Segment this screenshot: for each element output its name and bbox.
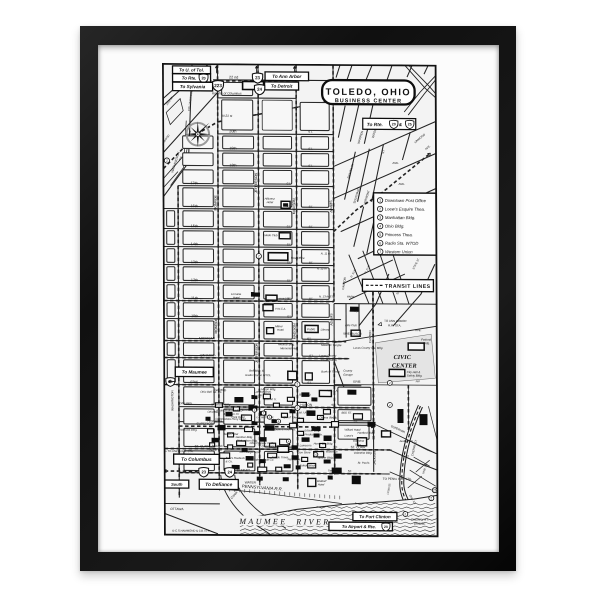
svg-text:ST.: ST. xyxy=(353,419,358,423)
svg-text:2: 2 xyxy=(379,207,381,211)
svg-text:Hotel: Hotel xyxy=(233,295,240,299)
svg-text:18th: 18th xyxy=(229,163,236,167)
svg-text:MONROE: MONROE xyxy=(214,317,218,333)
svg-text:Natl. Bank: Natl. Bank xyxy=(288,457,302,461)
svg-text:11th: 11th xyxy=(191,296,198,300)
svg-text:Western Union: Western Union xyxy=(385,249,413,254)
svg-text:‹ONTARIO›: ‹ONTARIO› xyxy=(199,353,215,357)
svg-text:TRANSIT LINES: TRANSIT LINES xyxy=(385,283,431,289)
svg-text:19th: 19th xyxy=(229,146,236,150)
svg-text:Nicholas Bldg.: Nicholas Bldg. xyxy=(180,427,198,431)
svg-text:23: 23 xyxy=(255,75,260,80)
svg-text:N 21 st: N 21 st xyxy=(222,113,232,117)
svg-text:LYNN: LYNN xyxy=(354,474,362,478)
svg-text:Huron Bldg.: Huron Bldg. xyxy=(261,387,276,391)
svg-text:To Airport & Rte.: To Airport & Rte. xyxy=(342,524,380,529)
svg-text:10th: 10th xyxy=(191,314,198,318)
svg-text:ST.: ST. xyxy=(287,224,292,228)
svg-text:2: 2 xyxy=(166,158,168,162)
svg-text:20: 20 xyxy=(392,122,396,126)
svg-text:Y.W.C.A.: Y.W.C.A. xyxy=(275,306,286,310)
svg-text:Auditorium: Auditorium xyxy=(399,438,414,442)
svg-text:22 nd: 22 nd xyxy=(229,75,238,79)
svg-text:JEFFERSON: JEFFERSON xyxy=(255,342,259,363)
svg-text:BRIDGE: BRIDGE xyxy=(414,521,426,525)
svg-text:Radio Sta. WTOD: Radio Sta. WTOD xyxy=(385,240,418,245)
svg-text:Toledo Blade: Toledo Blade xyxy=(300,463,317,467)
svg-text:Radio Station WTOL: Radio Station WTOL xyxy=(245,373,271,377)
svg-text:ST.: ST. xyxy=(308,163,313,167)
svg-text:5: 5 xyxy=(379,232,381,236)
svg-text:Princess Thea.: Princess Thea. xyxy=(385,232,413,237)
svg-text:N. 11 th: N. 11 th xyxy=(321,251,331,255)
svg-text:Nat. Union: Nat. Union xyxy=(297,410,311,414)
svg-text:Bell Bldg. &: Bell Bldg. & xyxy=(249,368,264,372)
svg-text:20th: 20th xyxy=(229,129,236,133)
svg-text:Elec. Bldg.: Elec. Bldg. xyxy=(213,387,227,391)
svg-text:CIVIC: CIVIC xyxy=(394,353,412,360)
svg-text:ST.: ST. xyxy=(309,353,314,357)
svg-text:Ohio Bldg.: Ohio Bldg. xyxy=(179,401,192,405)
svg-text:N. 12 th: N. 12 th xyxy=(317,266,327,270)
svg-text:Lamson’s: Lamson’s xyxy=(300,443,313,447)
svg-text:Bldg.: Bldg. xyxy=(423,341,430,345)
svg-text:TO PENN. R.R. STA.: TO PENN. R.R. STA. xyxy=(383,476,412,480)
svg-text:SUMMIT: SUMMIT xyxy=(237,468,250,472)
svg-text:To Sylvania: To Sylvania xyxy=(180,84,206,89)
svg-text:Tiedtke's: Tiedtke's xyxy=(328,468,340,472)
svg-text:2: 2 xyxy=(405,512,407,516)
svg-text:Lion Store: Lion Store xyxy=(298,450,311,454)
svg-text:ST.: ST. xyxy=(287,314,292,318)
svg-text:To Rte.: To Rte. xyxy=(367,122,383,128)
svg-text:ST.: ST. xyxy=(287,278,292,282)
svg-text:ERIE: ERIE xyxy=(190,380,199,384)
svg-text:ST.: ST. xyxy=(286,181,291,185)
svg-text:Post Office: Post Office xyxy=(291,255,305,259)
svg-text:ST.: ST. xyxy=(334,445,339,449)
svg-text:ST.: ST. xyxy=(287,204,292,208)
svg-text:15th: 15th xyxy=(191,224,198,228)
svg-text:2: 2 xyxy=(389,381,391,385)
svg-text:N. 13 th ST.: N. 13 th ST. xyxy=(319,294,334,298)
svg-text:Braun Co.: Braun Co. xyxy=(210,447,223,451)
svg-text:To Detroit: To Detroit xyxy=(271,83,293,88)
svg-text:Thea.: Thea. xyxy=(355,442,362,446)
svg-text:To Rte.: To Rte. xyxy=(182,75,202,80)
svg-text:Jail: Jail xyxy=(415,379,420,383)
svg-text:LaSalle & Koch Co.: LaSalle & Koch Co. xyxy=(272,427,296,431)
svg-text:Valentine: Valentine xyxy=(353,438,365,442)
svg-text:ST. CLAIR: ST. CLAIR xyxy=(195,444,211,448)
svg-text:25: 25 xyxy=(408,122,412,126)
svg-text:Waldman: Waldman xyxy=(326,449,338,453)
svg-text:Gardner Bldg.: Gardner Bldg. xyxy=(236,434,254,438)
svg-text:Court: Court xyxy=(402,453,409,457)
svg-text:Memorial Hall: Memorial Hall xyxy=(280,346,297,350)
svg-text:ST.: ST. xyxy=(309,260,314,264)
svg-text:Owens Illinois: Owens Illinois xyxy=(319,415,337,419)
svg-text:PARK: PARK xyxy=(347,294,355,298)
svg-text:4: 4 xyxy=(379,224,381,228)
svg-text:12th: 12th xyxy=(191,278,198,282)
svg-text:ST.: ST. xyxy=(309,224,314,228)
svg-text:ST.: ST. xyxy=(307,336,312,340)
svg-text:24: 24 xyxy=(227,469,232,474)
svg-text:Downtown Post Office: Downtown Post Office xyxy=(385,197,427,202)
svg-text:2: 2 xyxy=(258,254,260,258)
svg-text:ST.: ST. xyxy=(307,380,312,384)
svg-text:Bk. of Toledo: Bk. of Toledo xyxy=(283,415,300,419)
svg-text:17th: 17th xyxy=(190,181,197,185)
svg-text:ADAMS: ADAMS xyxy=(329,199,333,212)
svg-text:223: 223 xyxy=(214,83,222,88)
svg-text:Summit Tr.: Summit Tr. xyxy=(263,397,277,401)
svg-text:WASHINGTON: WASHINGTON xyxy=(170,390,174,411)
svg-text:Home Bk. Bldg.: Home Bk. Bldg. xyxy=(314,441,334,445)
svg-text:Court House: Court House xyxy=(321,357,337,361)
svg-text:To U. of Tol.: To U. of Tol. xyxy=(179,67,204,72)
svg-text:MADISON: MADISON xyxy=(293,322,297,338)
svg-text:Toledo Club: Toledo Club xyxy=(263,233,278,237)
svg-text:ADAMS: ADAMS xyxy=(330,312,334,325)
svg-text:AVE.: AVE. xyxy=(415,328,422,332)
svg-text:Spitzer Bldg.: Spitzer Bldg. xyxy=(318,455,334,459)
svg-text:2: 2 xyxy=(296,405,298,409)
svg-text:ST.: ST. xyxy=(309,204,314,208)
svg-text:Safety Bldg.: Safety Bldg. xyxy=(407,373,423,377)
svg-text:Bostwick: Bostwick xyxy=(212,443,224,447)
svg-text:To Maumee: To Maumee xyxy=(182,369,208,374)
svg-text:HURON: HURON xyxy=(300,402,312,406)
svg-text:7: 7 xyxy=(379,249,381,253)
svg-text:Park Hotel: Park Hotel xyxy=(231,414,244,418)
svg-text:South: South xyxy=(171,481,183,486)
svg-text:ST.: ST. xyxy=(331,403,336,407)
svg-text:2: 2 xyxy=(389,403,391,407)
svg-text:JEFFERSON: JEFFERSON xyxy=(254,172,258,193)
svg-text:WATER: WATER xyxy=(245,480,257,484)
svg-text:BEE ST.: BEE ST. xyxy=(341,410,352,414)
svg-text:Valentine Bldg.: Valentine Bldg. xyxy=(354,450,373,454)
svg-text:ST.: ST. xyxy=(309,296,314,300)
svg-text:23: 23 xyxy=(201,469,206,474)
svg-text:ST.: ST. xyxy=(287,260,292,264)
svg-text:To Port Clinton: To Port Clinton xyxy=(359,514,391,519)
svg-text:Ohio Svgs. Bk.: Ohio Svgs. Bk. xyxy=(262,444,281,448)
svg-text:3: 3 xyxy=(379,215,381,219)
svg-text:ST.: ST. xyxy=(287,242,292,246)
svg-text:Y.M.C.A.: Y.M.C.A. xyxy=(327,388,338,392)
svg-text:Hotel Willys: Hotel Willys xyxy=(207,418,222,422)
svg-text:ERIE: ERIE xyxy=(353,379,360,383)
svg-text:20: 20 xyxy=(201,76,205,80)
svg-text:2: 2 xyxy=(296,382,298,386)
svg-text:OTTAWA: OTTAWA xyxy=(170,507,184,511)
svg-text:Bell Bldg.: Bell Bldg. xyxy=(299,392,311,396)
svg-text:County: County xyxy=(343,368,352,372)
svg-text:JACKSON: JACKSON xyxy=(373,450,377,464)
svg-text:ST.: ST. xyxy=(308,129,313,133)
svg-text:Hotel: Hotel xyxy=(277,327,284,331)
svg-text:BUSINESS CENTER: BUSINESS CENTER xyxy=(335,98,402,104)
svg-text:CENTER: CENTER xyxy=(392,362,417,369)
svg-text:TOLEDO, OHIO: TOLEDO, OHIO xyxy=(326,86,412,97)
svg-text:St. Paul’s: St. Paul’s xyxy=(358,460,370,464)
svg-text:1: 1 xyxy=(379,198,381,202)
svg-text:To Columbus: To Columbus xyxy=(181,456,212,462)
svg-text:Co.: Co. xyxy=(258,393,263,397)
svg-text:Lucas County Cts. Bldg.: Lucas County Cts. Bldg. xyxy=(353,345,383,349)
svg-text:Bank of Toledo: Bank of Toledo xyxy=(321,369,340,373)
svg-text:Lucas County: Lucas County xyxy=(319,353,337,357)
svg-text:Armory: Armory xyxy=(348,308,359,312)
svg-text:Ohio Bldg.: Ohio Bldg. xyxy=(207,409,220,413)
svg-text:25: 25 xyxy=(433,488,437,492)
svg-text:16th: 16th xyxy=(191,204,198,208)
svg-text:14th: 14th xyxy=(191,242,198,246)
svg-text:Ohio Bldg.: Ohio Bldg. xyxy=(385,223,405,228)
svg-text:10: 10 xyxy=(314,452,318,456)
svg-text:MADISON: MADISON xyxy=(292,197,296,213)
svg-text:ST.: ST. xyxy=(308,146,313,150)
svg-text:24: 24 xyxy=(257,86,262,91)
svg-text:Hartford Bldg.: Hartford Bldg. xyxy=(358,430,375,434)
svg-text:Elks Club: Elks Club xyxy=(345,323,357,327)
svg-text:To Defiance: To Defiance xyxy=(205,481,232,487)
svg-text:AVE.: AVE. xyxy=(398,181,405,185)
svg-text:13th: 13th xyxy=(191,260,198,264)
svg-text:2: 2 xyxy=(430,496,432,500)
svg-text:TO ANN ARBOR: TO ANN ARBOR xyxy=(384,318,407,322)
svg-text:Loew's Esquire Thea.: Loew's Esquire Thea. xyxy=(385,206,425,211)
svg-text:Garage: Garage xyxy=(343,372,353,376)
svg-text:Knights of Columbus: Knights of Columbus xyxy=(212,91,242,95)
svg-text:6: 6 xyxy=(379,241,381,245)
svg-text:Broadcast Bldg.: Broadcast Bldg. xyxy=(211,402,231,406)
svg-text:Manhattan Bldg.: Manhattan Bldg. xyxy=(385,214,416,219)
svg-text:Produce Exch.: Produce Exch. xyxy=(305,432,323,436)
svg-text:20: 20 xyxy=(384,524,388,528)
svg-text:ST.: ST. xyxy=(348,469,353,473)
svg-text:R.R. STA.: R.R. STA. xyxy=(388,323,401,327)
svg-text:Hotel: Hotel xyxy=(318,482,325,486)
svg-text:Library: Library xyxy=(321,327,330,331)
svg-text:MONROE: MONROE xyxy=(214,194,218,210)
svg-text:& Co.: & Co. xyxy=(226,459,233,463)
svg-text:◎ C.S.HAMMOND & CO. N.Y.: ◎ C.S.HAMMOND & CO. N.Y. xyxy=(172,528,210,532)
svg-text:MAUMEE RIVER: MAUMEE RIVER xyxy=(238,516,330,526)
svg-text:MICHIGAN: MICHIGAN xyxy=(199,336,216,340)
svg-text:AVE.: AVE. xyxy=(392,160,399,164)
svg-text:Medical Bldg.: Medical Bldg. xyxy=(278,342,295,346)
svg-text:Hotel: Hotel xyxy=(267,200,274,204)
svg-text:Masonic Temple: Masonic Temple xyxy=(321,342,342,346)
svg-text:To Ann Arbor: To Ann Arbor xyxy=(272,73,301,78)
svg-text:CANTON: CANTON xyxy=(368,330,372,343)
svg-text:Public: Public xyxy=(307,327,316,331)
svg-text:Fort Meigs Hotel: Fort Meigs Hotel xyxy=(240,449,261,453)
svg-text:SPIELBUSCH: SPIELBUSCH xyxy=(343,331,361,335)
svg-text:CHERRY ST.: CHERRY ST. xyxy=(411,517,429,521)
svg-text:Toledo Times: Toledo Times xyxy=(272,455,289,459)
svg-text:Y.M.C.A.: Y.M.C.A. xyxy=(279,296,290,300)
svg-text:Loew's: Loew's xyxy=(345,433,354,437)
svg-text:Edison Bldg.: Edison Bldg. xyxy=(305,428,321,432)
